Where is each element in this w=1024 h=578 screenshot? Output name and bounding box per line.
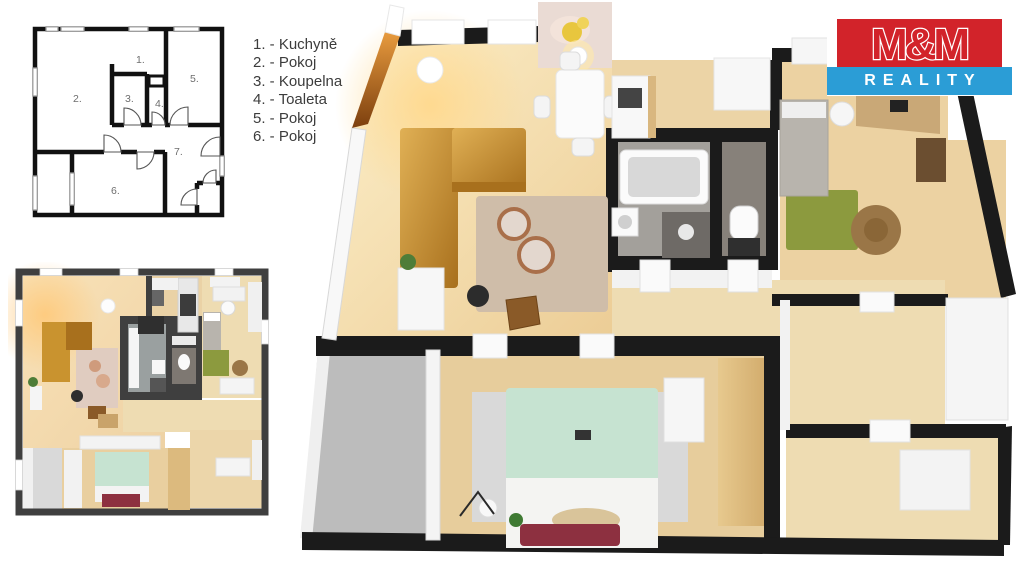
- plant: [400, 254, 416, 270]
- side-table: [89, 360, 101, 372]
- floor-lamp: [417, 57, 443, 83]
- bathtub-inner: [628, 157, 700, 197]
- window: [385, 5, 404, 36]
- dresser: [664, 378, 704, 442]
- side-table: [519, 238, 553, 272]
- counter: [152, 278, 178, 290]
- balcony-railing: [23, 448, 33, 510]
- maroon-blanket: [520, 524, 620, 546]
- wood-wardrobe: [718, 358, 764, 526]
- wardrobe: [210, 277, 240, 287]
- room-label-7: 7.: [174, 146, 183, 158]
- bathroom-door: [640, 260, 670, 292]
- bench: [220, 378, 254, 394]
- desk-chair: [221, 301, 235, 315]
- flower-decor: [577, 17, 589, 29]
- wall: [146, 276, 152, 316]
- cooktop: [618, 88, 642, 108]
- sideboard: [398, 268, 444, 330]
- window: [412, 20, 464, 44]
- tv-unit: [138, 316, 164, 334]
- black-pouf: [71, 390, 83, 402]
- logo-reality-text: REALITY: [857, 72, 981, 90]
- shelf-niche: [172, 336, 196, 345]
- living-door: [580, 334, 614, 358]
- wall-face: [252, 440, 262, 480]
- bean-bag: [232, 360, 248, 376]
- chair: [560, 52, 580, 70]
- desk-chair: [830, 102, 854, 126]
- sideboard: [30, 386, 42, 410]
- plant: [509, 513, 523, 527]
- wardrobe: [64, 450, 82, 508]
- wall: [764, 336, 780, 542]
- washer: [152, 360, 165, 374]
- balcony-window-wall: [426, 350, 440, 540]
- black-pouf: [467, 285, 489, 307]
- entry-door: [216, 458, 250, 476]
- green-rug: [203, 350, 229, 376]
- toilet: [730, 206, 758, 240]
- maroon-blanket: [102, 494, 140, 507]
- pillow: [204, 313, 220, 321]
- chair: [534, 96, 550, 118]
- entry-door: [870, 420, 910, 442]
- bean-bag-center: [864, 218, 888, 242]
- logo-mm-text-svg: M&M: [837, 19, 1002, 67]
- room-label-6: 6.: [111, 185, 120, 197]
- room-label-4: 4.: [155, 98, 164, 110]
- room-label-5: 5.: [190, 73, 199, 85]
- closet-row: [80, 436, 160, 449]
- render-3d-small: [8, 262, 278, 518]
- plan-doors: [104, 107, 220, 205]
- room-label-1: 1.: [136, 54, 145, 66]
- fridge: [152, 290, 164, 306]
- washer-door: [618, 215, 632, 229]
- wardrobe: [248, 282, 262, 332]
- room-label-3: 3.: [125, 93, 134, 105]
- gold-sofa-chaise: [452, 128, 526, 190]
- entry-walls: [197, 183, 222, 215]
- room-label-2: 2.: [73, 93, 82, 105]
- bedroom-door: [473, 334, 507, 358]
- wall: [316, 336, 776, 356]
- side-table: [96, 374, 110, 388]
- tablet-on-bed: [575, 430, 591, 440]
- logo-top-box: M&M: [837, 19, 1002, 67]
- stove: [180, 294, 196, 316]
- wood-wardrobe: [168, 448, 190, 510]
- sofa-chaise: [66, 322, 92, 350]
- vanity: [150, 378, 166, 392]
- dining-table: [556, 70, 604, 138]
- sofa-edge: [452, 182, 526, 192]
- kitchen-cabinets: [714, 58, 770, 110]
- mm-reality-logo: M&M REALITY: [827, 9, 1012, 96]
- window: [488, 20, 536, 44]
- green-rug: [786, 190, 858, 250]
- wall-face: [780, 300, 790, 430]
- sink: [678, 224, 694, 240]
- plant: [28, 377, 38, 387]
- floor-lamp: [101, 299, 115, 313]
- wardrobe: [946, 298, 1008, 420]
- counter-top: [648, 76, 656, 138]
- gold-sofa: [42, 322, 70, 382]
- logo-mm-text: M&M: [871, 20, 967, 67]
- wall: [710, 128, 722, 270]
- bedside-table: [479, 499, 497, 517]
- chair: [572, 138, 594, 156]
- toilet-door: [728, 260, 758, 292]
- wall: [998, 426, 1012, 545]
- toilet: [178, 354, 190, 370]
- laptop: [890, 100, 908, 112]
- toilet-tank: [728, 238, 760, 256]
- hallway-floor: [123, 400, 262, 432]
- dining-table: [98, 414, 118, 428]
- logo-reality-bar: REALITY: [827, 67, 1012, 95]
- bathtub: [129, 328, 139, 388]
- desk: [213, 287, 245, 301]
- lounge-chair: [506, 296, 540, 330]
- side-table: [499, 209, 529, 239]
- duct-shaft: [149, 76, 164, 86]
- wall: [766, 128, 778, 270]
- floorplan-2d: 1. 2. 3. 4. 5. 6. 7.: [17, 13, 233, 219]
- cabinet: [916, 138, 946, 182]
- pillow: [782, 102, 826, 118]
- entry-cabinet: [900, 450, 970, 510]
- door: [860, 292, 894, 312]
